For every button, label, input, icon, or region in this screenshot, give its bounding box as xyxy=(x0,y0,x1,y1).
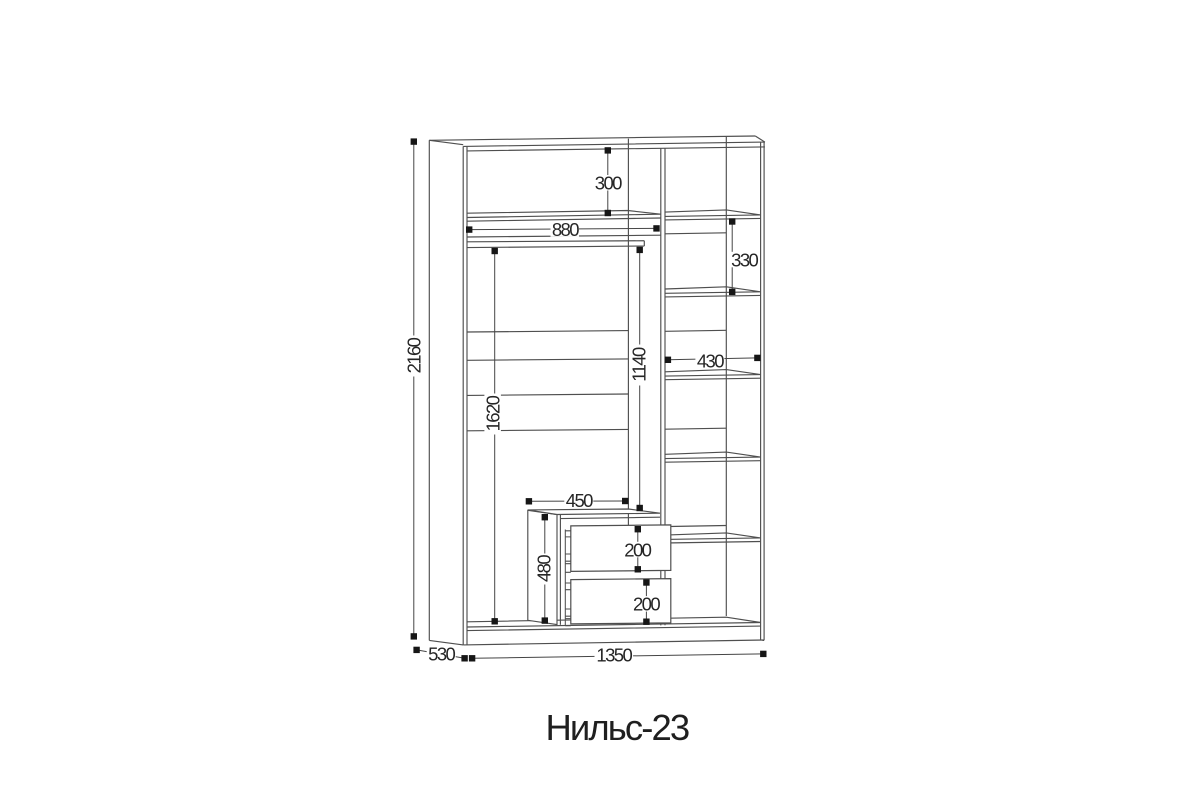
svg-text:430: 430 xyxy=(697,350,724,371)
svg-text:1620: 1620 xyxy=(483,395,504,431)
svg-text:1350: 1350 xyxy=(596,644,632,665)
svg-text:530: 530 xyxy=(428,643,455,664)
svg-text:880: 880 xyxy=(552,219,579,240)
svg-text:300: 300 xyxy=(595,173,622,194)
svg-text:Нильс-23: Нильс-23 xyxy=(545,707,688,748)
svg-text:1140: 1140 xyxy=(628,347,649,382)
svg-text:480: 480 xyxy=(533,555,554,582)
svg-text:200: 200 xyxy=(633,594,660,615)
svg-text:2160: 2160 xyxy=(404,337,425,373)
svg-text:330: 330 xyxy=(731,249,758,270)
svg-text:450: 450 xyxy=(566,490,593,511)
svg-text:200: 200 xyxy=(624,539,651,560)
